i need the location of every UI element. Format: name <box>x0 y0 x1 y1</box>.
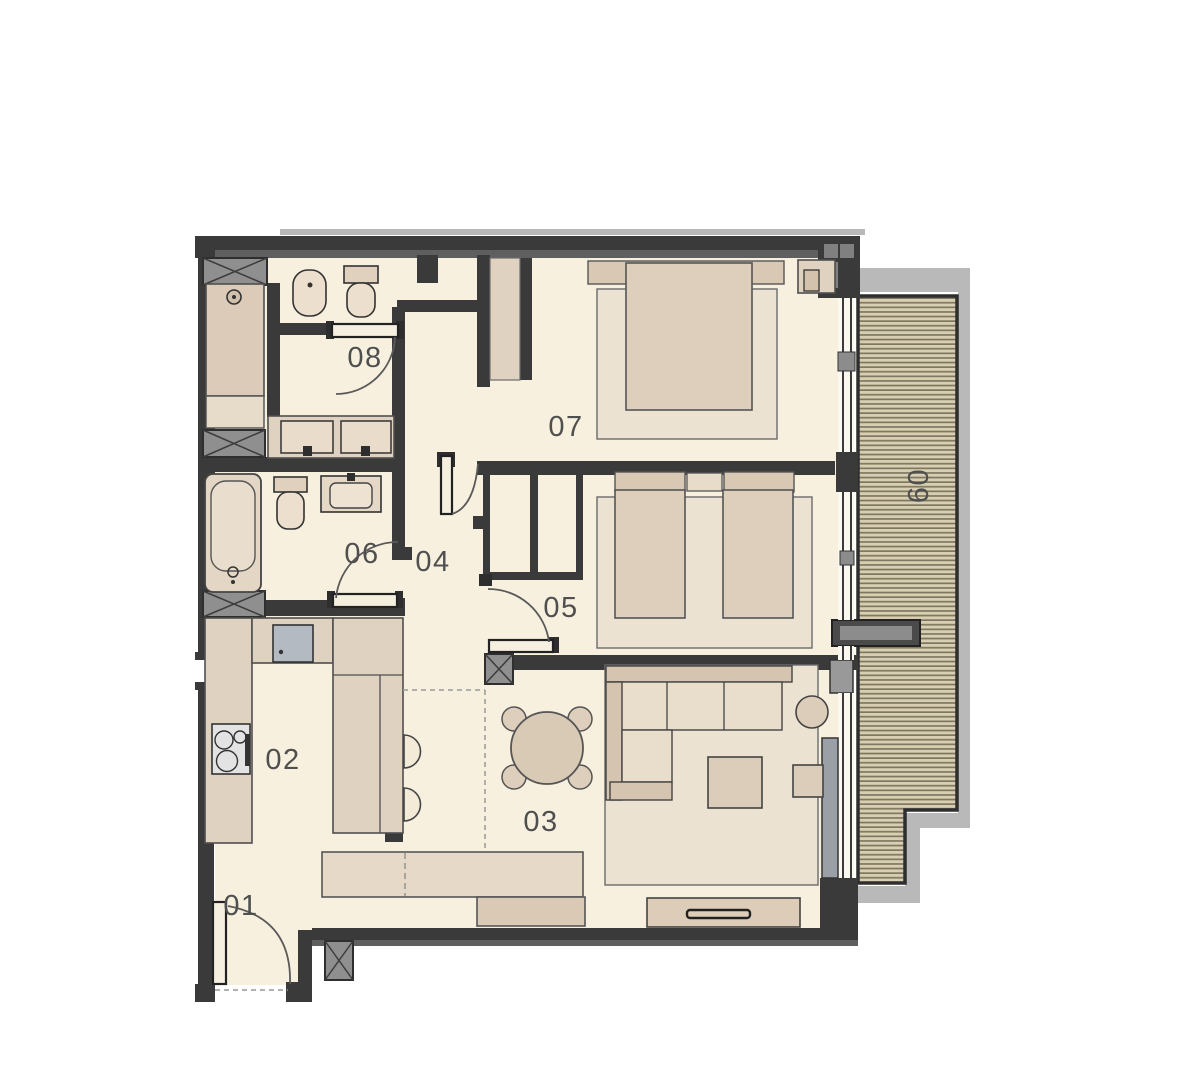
nightstand <box>687 473 722 491</box>
side-table <box>793 765 823 797</box>
window-mullion <box>840 551 854 565</box>
wall-vanity-south <box>203 457 393 472</box>
column <box>203 430 265 457</box>
wardrobe-niche <box>490 258 520 380</box>
washbasin-bathroom <box>321 473 381 512</box>
roof-overhang-line <box>280 229 865 235</box>
cooktop <box>212 724 250 774</box>
room-label-bedroom2: 05 <box>543 592 578 624</box>
faucet <box>361 446 370 456</box>
wall-wc-door <box>280 323 332 335</box>
column <box>203 258 267 285</box>
island-end-panel <box>385 833 403 842</box>
tv-console <box>647 898 800 927</box>
column <box>325 941 353 980</box>
wall-step <box>298 930 312 1002</box>
vanity-double-sink <box>268 416 394 458</box>
closet-block-divider <box>530 474 538 578</box>
floor-plan-svg: 01 02 03 04 05 06 07 08 09 <box>0 0 1200 1085</box>
kitchen-sink <box>273 625 313 662</box>
room-label-bedroom1: 07 <box>548 411 583 443</box>
balcony-divider-core <box>840 626 912 640</box>
wall-corner-se <box>820 878 858 936</box>
bench <box>477 897 585 926</box>
closet-block-stub <box>473 516 490 529</box>
room-label-entry: 01 <box>223 890 258 922</box>
closet-block-south <box>483 572 583 580</box>
sink-drain <box>279 650 283 654</box>
bedroom2-furniture <box>597 472 812 648</box>
sofa-back <box>606 666 792 682</box>
window-pier-mid <box>836 452 858 492</box>
wall-pier-top <box>417 255 438 283</box>
coffee-table <box>708 757 762 808</box>
wall-bedroom1-closet <box>520 258 532 380</box>
pouf <box>796 696 828 728</box>
dining-table <box>511 712 583 784</box>
safe <box>804 270 819 291</box>
shower <box>206 284 264 428</box>
wall-bottom-left <box>195 984 215 1002</box>
sofa-armrest <box>610 782 672 800</box>
column <box>485 654 513 684</box>
wall-wc-south <box>397 300 490 312</box>
room-label-balcony: 09 <box>901 469 933 504</box>
room-label-wc: 08 <box>347 342 382 374</box>
floor-plan-page: 01 02 03 04 05 06 07 08 09 <box>0 0 1200 1085</box>
double-bed <box>626 263 752 410</box>
sofa-chaise <box>622 730 672 782</box>
faucet <box>303 446 312 456</box>
dining-set <box>502 707 592 789</box>
room-label-bathroom: 06 <box>344 538 379 570</box>
kitchen-island <box>333 618 403 833</box>
corner-ne-core <box>840 244 854 258</box>
room-label-hallway: 04 <box>415 546 450 578</box>
bathtub <box>205 474 261 592</box>
room-label-living: 03 <box>523 806 558 838</box>
toilet-wc <box>344 266 378 317</box>
bed-headboard <box>615 472 685 492</box>
sliding-door-panel <box>822 738 838 878</box>
room-label-kitchen: 02 <box>265 744 300 776</box>
wall-bedroom1-west <box>477 255 490 387</box>
corner-ne-core <box>824 244 838 258</box>
toilet-bathroom <box>274 477 307 529</box>
wall-bottom <box>312 928 858 940</box>
faucet <box>347 473 355 481</box>
column <box>203 591 265 617</box>
sideboard <box>322 852 583 897</box>
balcony-deck <box>858 296 957 883</box>
twin-bed <box>615 490 685 618</box>
wall-bottom-outer <box>312 940 858 946</box>
wall-top-inner <box>215 250 860 258</box>
bidet <box>293 270 326 316</box>
sofa-seats <box>610 682 782 730</box>
window-pier <box>830 660 853 693</box>
wall-bath-door-head <box>392 547 412 560</box>
twin-bed <box>723 490 793 618</box>
wall-shower-wc <box>267 283 280 417</box>
closet-block-east <box>576 474 583 578</box>
window-mullion <box>838 352 855 371</box>
bed-headboard <box>724 472 794 492</box>
